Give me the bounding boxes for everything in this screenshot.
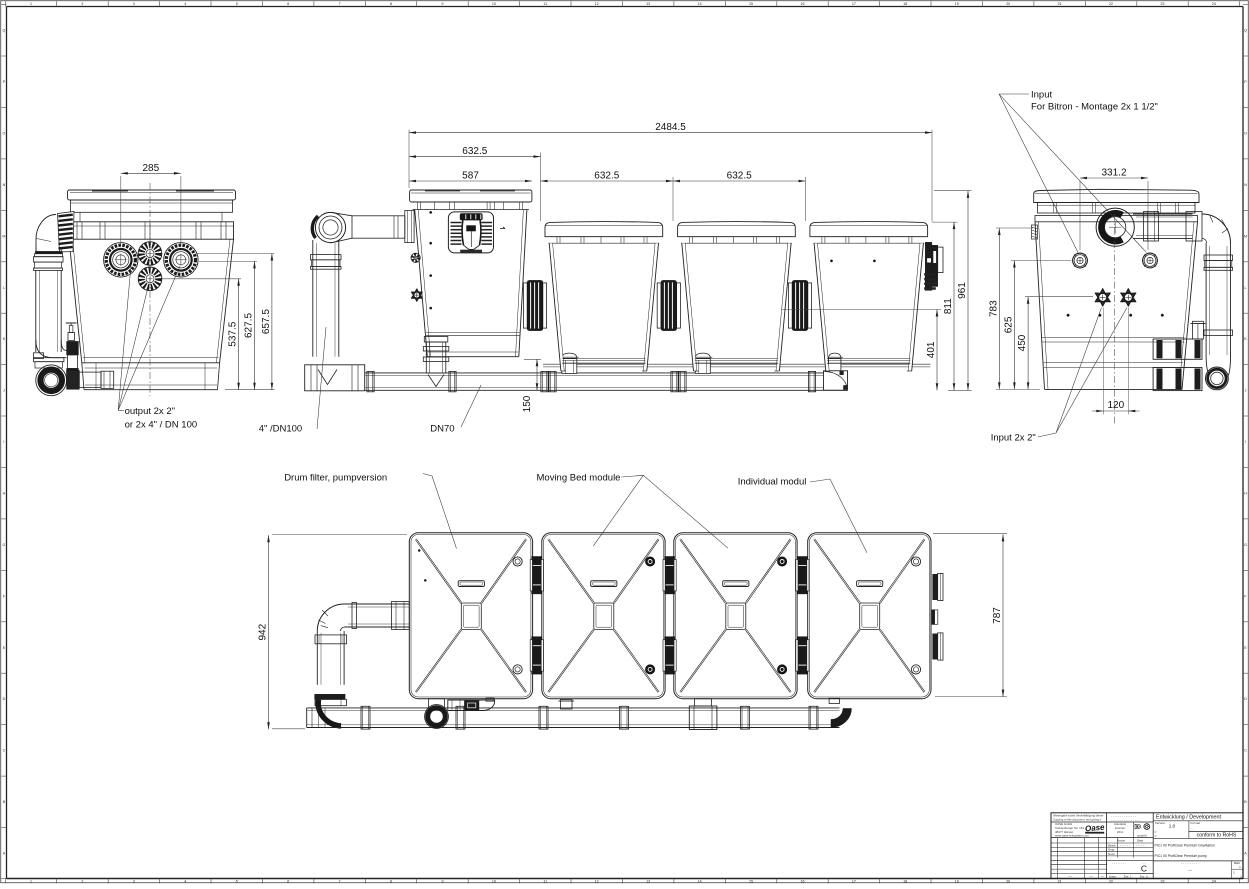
svg-text:13: 13 <box>646 2 650 6</box>
svg-text:961: 961 <box>957 282 968 299</box>
svg-text:D: D <box>1244 697 1247 701</box>
svg-text:24: 24 <box>1212 880 1216 884</box>
svg-text:=: = <box>1155 834 1157 838</box>
svg-text:I: I <box>1245 440 1246 444</box>
svg-text:942: 942 <box>258 623 269 640</box>
svg-text:11: 11 <box>543 2 547 6</box>
svg-text:N: N <box>3 183 6 187</box>
svg-text:Name: Name <box>1117 838 1125 842</box>
svg-text:7: 7 <box>339 2 341 6</box>
svg-text:2: 2 <box>81 880 83 884</box>
svg-text:J: J <box>1245 389 1247 393</box>
svg-text:—: — <box>1188 867 1192 872</box>
svg-text:output 2x 2": output 2x 2" <box>125 406 175 417</box>
svg-text:811: 811 <box>943 298 954 314</box>
svg-text:8: 8 <box>390 880 392 884</box>
svg-text:Q: Q <box>1244 29 1247 33</box>
svg-text:O: O <box>3 132 6 136</box>
svg-text:19: 19 <box>955 880 959 884</box>
svg-text:G: G <box>1244 543 1247 547</box>
svg-text:3: 3 <box>133 2 135 6</box>
svg-text:Moving Bed module: Moving Bed module <box>537 472 621 483</box>
svg-text:1: 1 <box>30 2 32 6</box>
svg-text:- - - - - -: - - - - - - <box>1136 843 1146 847</box>
svg-text:Q: Q <box>3 29 6 33</box>
svg-text:22: 22 <box>1109 880 1113 884</box>
svg-text:537.5: 537.5 <box>228 321 239 346</box>
svg-text:-: - <box>1192 828 1193 832</box>
svg-text:13: 13 <box>646 880 650 884</box>
svg-text:632.5: 632.5 <box>594 171 619 182</box>
svg-text:H: H <box>1244 492 1247 496</box>
svg-text:1: 1 <box>30 880 32 884</box>
svg-text:PIC1 00 ProfiClear Premium Gra: PIC1 00 ProfiClear Premium Gravitation <box>1155 843 1215 847</box>
svg-text:21: 21 <box>1058 2 1062 6</box>
svg-text:J: J <box>3 389 5 393</box>
svg-text:3: 3 <box>133 880 135 884</box>
svg-text:21: 21 <box>1058 880 1062 884</box>
svg-text:783: 783 <box>988 300 999 317</box>
svg-text:401: 401 <box>926 341 937 358</box>
svg-text:Oase: Oase <box>1085 823 1106 834</box>
svg-text:or 2x 4" / DN 100: or 2x 4" / DN 100 <box>125 420 198 431</box>
svg-text:15: 15 <box>749 880 753 884</box>
svg-text:18: 18 <box>903 2 907 6</box>
svg-text:627.5: 627.5 <box>244 313 255 338</box>
svg-text:C: C <box>1141 864 1147 874</box>
svg-text:M: M <box>1244 234 1247 238</box>
svg-text:24: 24 <box>1212 2 1216 6</box>
svg-text:20: 20 <box>1006 2 1010 6</box>
svg-text:14: 14 <box>698 2 702 6</box>
svg-text:L: L <box>1245 286 1247 290</box>
svg-text:Input 2x 2": Input 2x 2" <box>991 433 1036 444</box>
svg-text:-: - <box>1054 864 1055 868</box>
svg-text:D: D <box>3 697 6 701</box>
svg-text:632.5: 632.5 <box>462 146 487 157</box>
svg-text:6: 6 <box>287 880 289 884</box>
svg-text:331.2: 331.2 <box>1101 168 1126 179</box>
svg-text:23: 23 <box>1161 2 1165 6</box>
svg-text:Urspr.: Urspr. <box>1109 874 1117 878</box>
svg-text:geprüft: geprüft <box>1138 834 1147 838</box>
svg-text:-: - <box>1054 860 1055 864</box>
svg-text:Drum filter, pumpversion: Drum filter, pumpversion <box>284 472 387 483</box>
svg-text:12: 12 <box>595 2 599 6</box>
svg-text:4: 4 <box>184 2 186 6</box>
svg-text:Ers. f. :: Ers. f. : <box>1124 874 1133 878</box>
svg-text:787: 787 <box>992 607 1003 624</box>
svg-text:Individual modul: Individual modul <box>738 476 807 487</box>
svg-text:L: L <box>3 286 5 290</box>
svg-text:285: 285 <box>142 163 159 174</box>
svg-text:www.oase-livingwater.com: www.oase-livingwater.com <box>1055 834 1089 838</box>
svg-text:PIC1 00 ProfiClear Premium pum: PIC1 00 ProfiClear Premium pump <box>1155 854 1207 858</box>
svg-text:7: 7 <box>339 880 341 884</box>
svg-text:632.5: 632.5 <box>727 171 752 182</box>
svg-text:- - - - - - - - - -: - - - - - - - - - - <box>1181 861 1199 865</box>
svg-text:4" /DN100: 4" /DN100 <box>259 424 303 435</box>
svg-text:DN70: DN70 <box>430 424 454 435</box>
svg-text:For Bitron - Montage 2x 1 1/2": For Bitron - Montage 2x 1 1/2" <box>1031 102 1158 113</box>
svg-text:8: 8 <box>390 2 392 6</box>
svg-text:1.0: 1.0 <box>1169 824 1176 829</box>
svg-text:9: 9 <box>442 880 444 884</box>
svg-text:150: 150 <box>522 395 533 412</box>
svg-text:Input: Input <box>1031 90 1052 101</box>
svg-text:4: 4 <box>184 880 186 884</box>
svg-text:10: 10 <box>492 2 496 6</box>
svg-text:16: 16 <box>801 2 805 6</box>
svg-text:16: 16 <box>801 880 805 884</box>
svg-text:H: H <box>3 492 6 496</box>
svg-text:Date: Date <box>1137 838 1144 842</box>
svg-text:Version:: Version: <box>1155 821 1166 825</box>
svg-text:Entwicklung / Development: Entwicklung / Development <box>1156 815 1222 821</box>
svg-text:C: C <box>1244 749 1247 753</box>
svg-text:14: 14 <box>698 880 702 884</box>
svg-text:5: 5 <box>236 880 238 884</box>
svg-text:conform to RoHS: conform to RoHS <box>1197 832 1237 838</box>
svg-text:11: 11 <box>543 880 547 884</box>
svg-text:C: C <box>3 749 6 753</box>
svg-text:Copying of this document, and: Copying of this document, and giving it <box>1053 818 1101 822</box>
svg-text:23: 23 <box>1161 880 1165 884</box>
svg-text:2484.5: 2484.5 <box>655 122 686 133</box>
svg-text:15: 15 <box>749 2 753 6</box>
svg-text:22: 22 <box>1109 2 1113 6</box>
svg-text:12: 12 <box>595 880 599 884</box>
svg-text:17: 17 <box>852 880 856 884</box>
svg-text:20: 20 <box>1006 880 1010 884</box>
svg-text:Ers. d. :: Ers. d. : <box>1140 874 1150 878</box>
svg-text:2: 2 <box>81 2 83 6</box>
svg-text:18: 18 <box>903 880 907 884</box>
svg-text:120: 120 <box>1107 400 1124 411</box>
svg-text:-: - <box>1054 868 1055 872</box>
svg-text:5: 5 <box>236 2 238 6</box>
svg-text:G: G <box>3 543 6 547</box>
svg-text:- - - - - - - -: - - - - - - - - <box>1112 861 1126 865</box>
svg-text:450: 450 <box>1017 334 1028 351</box>
svg-text:I: I <box>3 440 4 444</box>
svg-text:625: 625 <box>1003 316 1014 333</box>
svg-text:657.5: 657.5 <box>261 309 272 334</box>
svg-text:-: - <box>1054 873 1055 877</box>
svg-text:Norm: Norm <box>1108 852 1116 856</box>
svg-text:M: M <box>2 234 5 238</box>
svg-text:17: 17 <box>852 2 856 6</box>
svg-text:9: 9 <box>442 2 444 6</box>
svg-text:587: 587 <box>462 171 479 182</box>
svg-text:2011: 2011 <box>1117 830 1124 834</box>
svg-text:O: O <box>1244 132 1247 136</box>
svg-text:10: 10 <box>492 880 496 884</box>
svg-text:Format: Format <box>1191 821 1201 825</box>
svg-text:6: 6 <box>287 2 289 6</box>
svg-text:19: 19 <box>955 2 959 6</box>
svg-text:- - - - - -: - - - - - - <box>1120 843 1130 847</box>
svg-text:N: N <box>1244 183 1247 187</box>
